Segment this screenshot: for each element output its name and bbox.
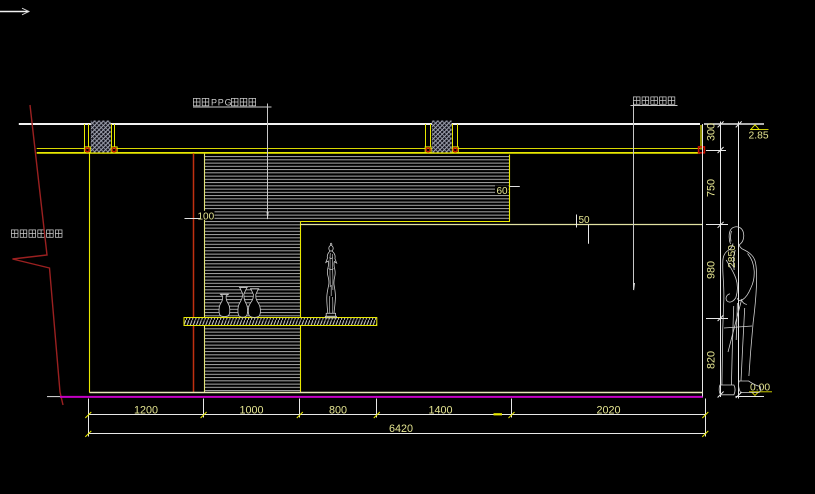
svg-text:2020: 2020	[596, 404, 620, 416]
svg-text:820: 820	[706, 351, 718, 369]
svg-text:100: 100	[198, 212, 215, 223]
svg-text:1000: 1000	[239, 404, 263, 416]
svg-text:1200: 1200	[134, 404, 158, 416]
svg-text:2.85: 2.85	[749, 130, 769, 141]
svg-text:6420: 6420	[389, 423, 413, 435]
svg-text:50: 50	[579, 215, 591, 226]
svg-text:PPG: PPG	[211, 97, 232, 107]
svg-text:300: 300	[706, 123, 718, 141]
svg-text:800: 800	[329, 404, 347, 416]
svg-text:60: 60	[497, 186, 509, 197]
svg-text:1400: 1400	[428, 404, 452, 416]
svg-text:750: 750	[706, 179, 718, 197]
svg-text:980: 980	[706, 261, 718, 279]
